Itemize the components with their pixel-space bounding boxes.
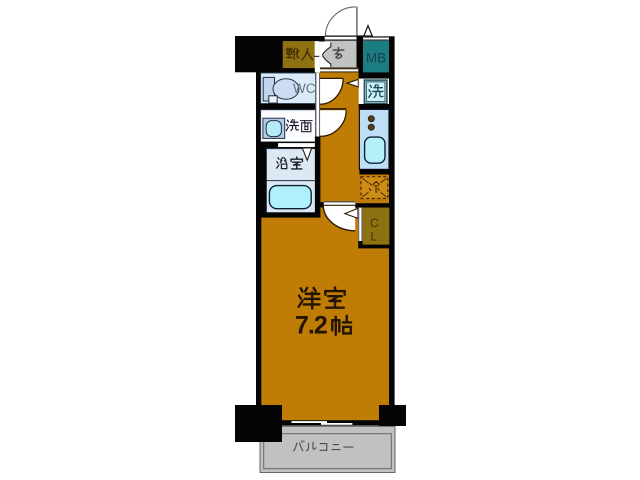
svg-text:MB: MB — [366, 51, 386, 66]
svg-text:L: L — [371, 230, 378, 244]
svg-text:C: C — [370, 216, 379, 230]
svg-text:WC: WC — [293, 81, 316, 96]
svg-text:7.2: 7.2 — [295, 312, 327, 340]
